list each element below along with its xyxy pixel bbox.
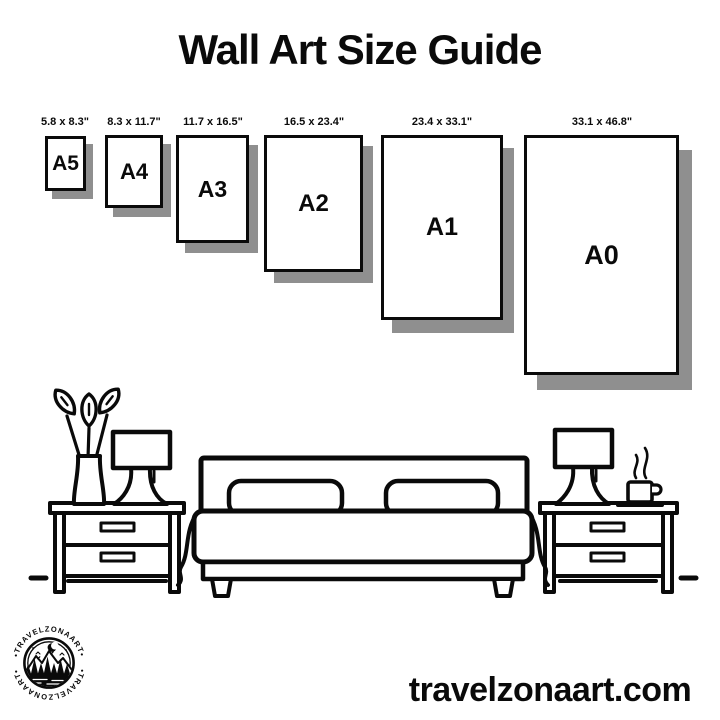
nightstand-right	[540, 503, 677, 592]
drawer-handle	[101, 523, 134, 531]
drawer-handle	[591, 553, 624, 561]
brand-logo: •TRAVELZONAART• •TRAVELZONAART•	[11, 624, 87, 701]
website-url: travelzonaart.com	[398, 671, 702, 710]
bed-leg	[212, 579, 231, 596]
mattress	[194, 511, 532, 562]
steam-icon	[644, 448, 647, 478]
bed-leg	[494, 579, 513, 596]
coffee-cup	[618, 448, 662, 505]
nightstand-left	[50, 503, 184, 592]
star-icon	[65, 649, 67, 651]
drawer-handle	[101, 553, 134, 561]
bed-base	[203, 562, 523, 579]
table-lamp-left	[113, 432, 170, 504]
star-icon	[32, 647, 34, 649]
steam-icon	[635, 455, 638, 478]
table-lamp-right	[555, 430, 612, 504]
bedroom-illustration: •TRAVELZONAART• •TRAVELZONAART•	[0, 0, 720, 720]
drawer-handle	[591, 523, 624, 531]
double-bed	[178, 458, 548, 596]
